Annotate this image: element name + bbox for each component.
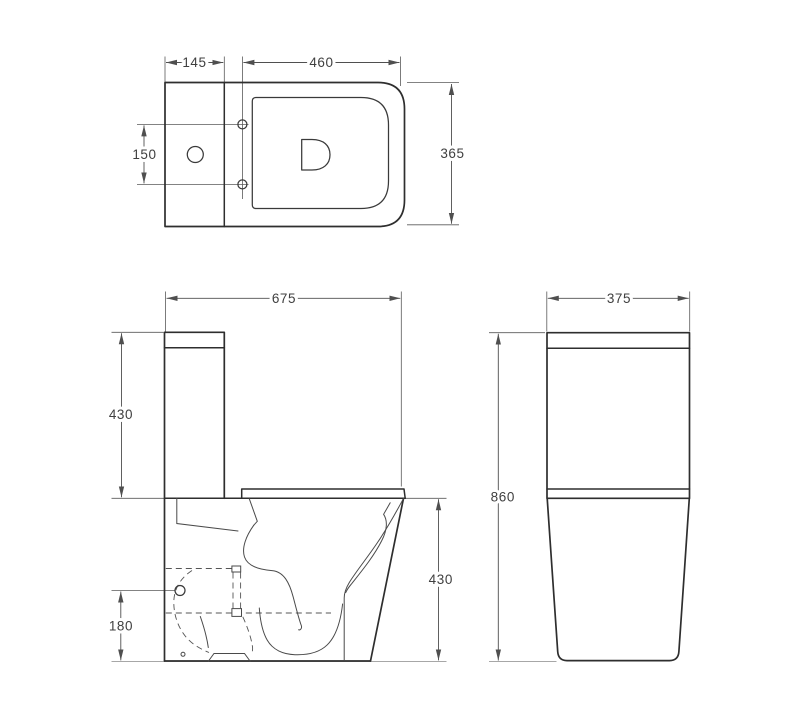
dim-label-seat-length: 460	[309, 55, 333, 70]
dim-label-tank-depth: 145	[182, 55, 206, 70]
dim-label-overall-height: 860	[491, 489, 515, 504]
technical-drawing-page: 145 460 150 365	[0, 0, 800, 719]
dim-label-outlet-height: 180	[109, 619, 133, 634]
flush-valve-seat	[232, 609, 242, 617]
dim-label-tank-height: 430	[109, 407, 133, 422]
dim-label-overall-depth: 675	[272, 291, 296, 306]
dim-label-hinge-spacing: 150	[132, 147, 156, 162]
dim-label-front-width: 375	[607, 291, 631, 306]
dim-label-top-width: 365	[440, 146, 464, 161]
flush-valve-cap	[232, 566, 241, 572]
dim-label-bowl-height: 430	[429, 572, 453, 587]
toilet-dimension-drawing: 145 460 150 365	[0, 0, 800, 719]
canvas-background	[0, 0, 800, 719]
